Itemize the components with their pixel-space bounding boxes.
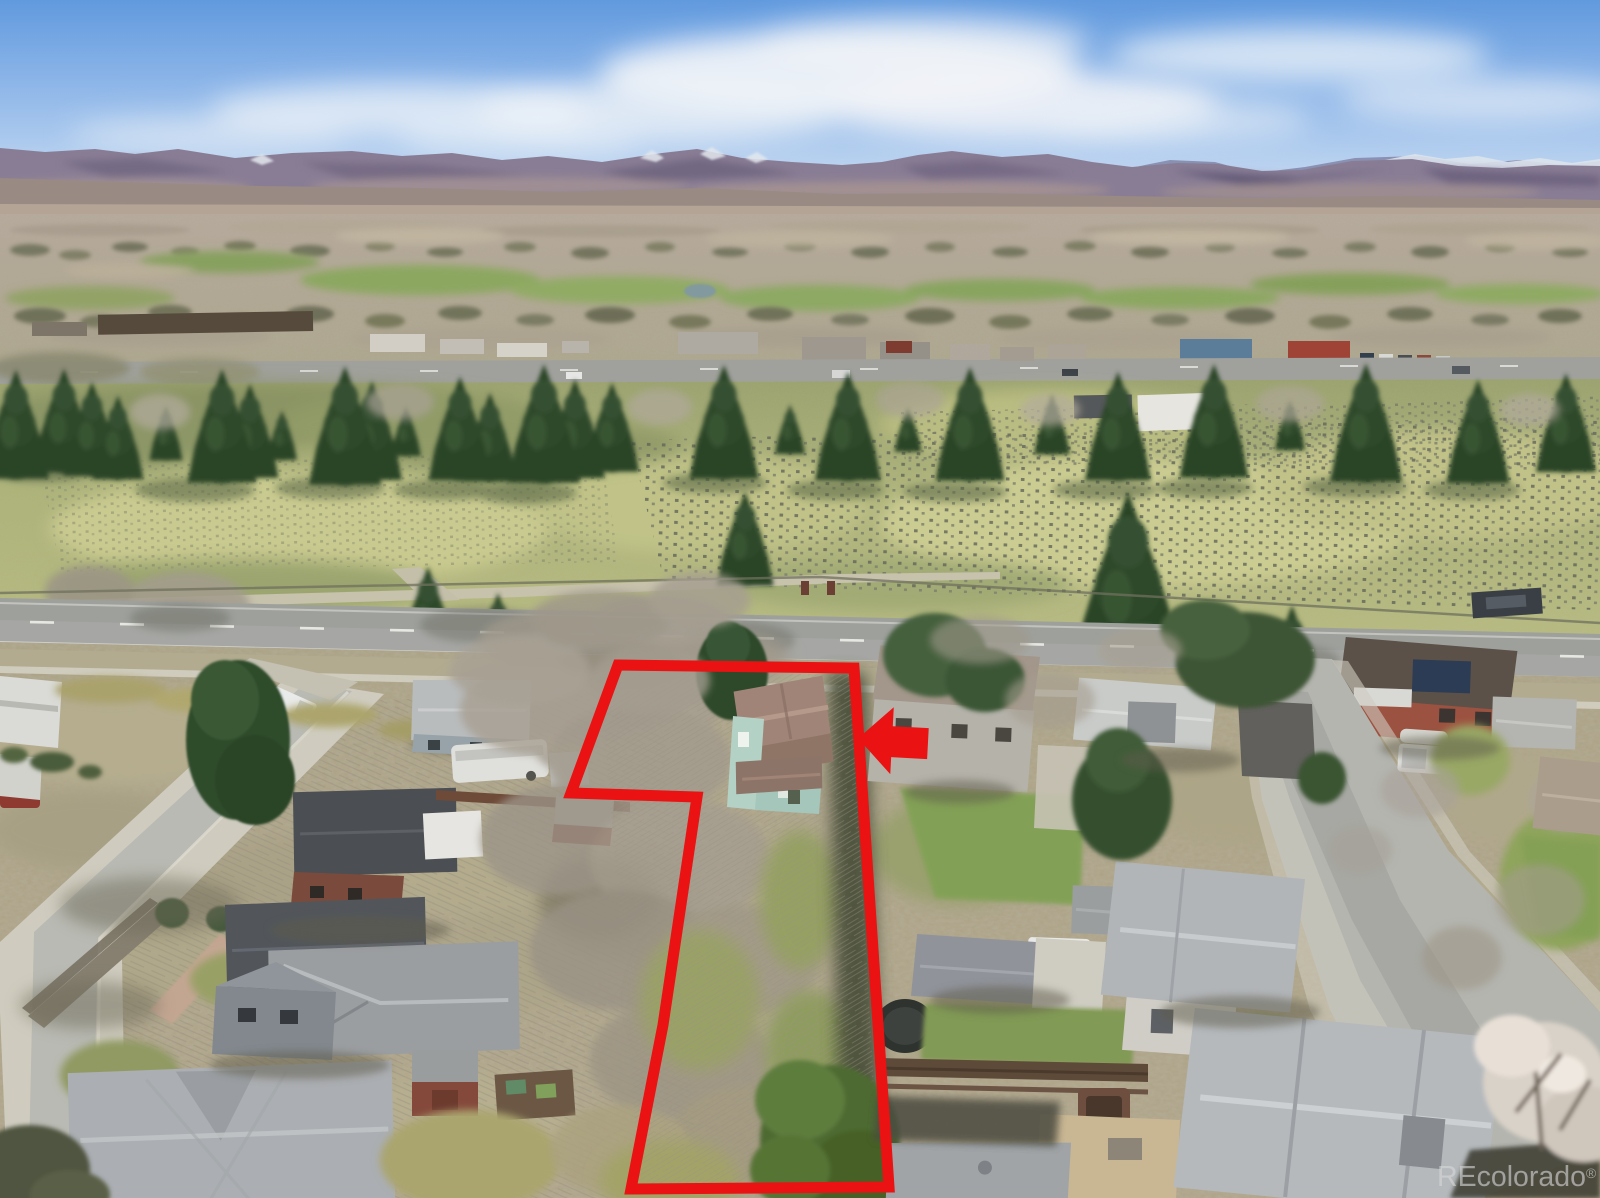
svg-text:REcolorado®: REcolorado® bbox=[1437, 1161, 1597, 1193]
